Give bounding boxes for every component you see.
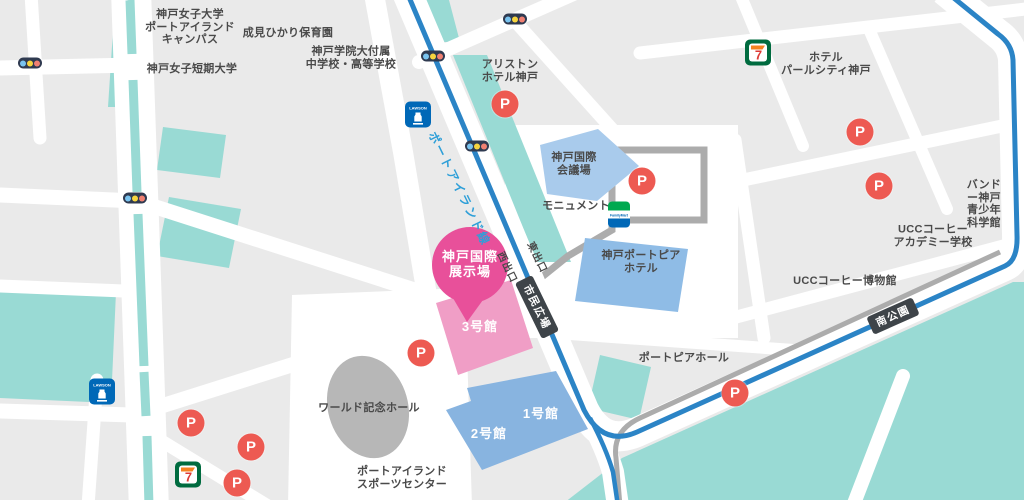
parking-icon[interactable]: P [629, 168, 656, 195]
parking-icon[interactable]: P [492, 91, 519, 118]
parking-icon[interactable]: P [722, 380, 749, 407]
road [31, 0, 40, 138]
traffic-light-icon [503, 14, 527, 25]
parking-icon[interactable]: P [408, 340, 435, 367]
traffic-light-icon [421, 51, 445, 62]
base-map [0, 0, 1024, 500]
callout-bubble[interactable] [432, 227, 508, 303]
green-block [157, 127, 226, 178]
map-canvas[interactable]: 神戸女子大学 ポートアイランド キャンパス 成見ひかり保育園 神戸学院大付属 中… [0, 0, 1024, 500]
seven-eleven-icon[interactable]: 7 [745, 40, 771, 71]
road [0, 286, 124, 291]
familymart-icon[interactable]: FamilyMart [608, 202, 630, 233]
parking-icon[interactable]: P [178, 410, 205, 437]
parking-icon[interactable]: P [866, 173, 893, 200]
seven-text: 7 [185, 470, 192, 485]
parking-icon[interactable]: P [847, 119, 874, 146]
seven-eleven-icon[interactable]: 7 [175, 462, 201, 493]
lawson-text: LAWSON [93, 383, 111, 388]
building-portopia-hotel[interactable] [575, 238, 688, 312]
parking-icon[interactable]: P [238, 434, 265, 461]
lawson-icon[interactable]: LAWSON [89, 379, 115, 410]
traffic-light-icon [123, 193, 147, 204]
familymart-text: FamilyMart [610, 214, 629, 218]
lawson-text: LAWSON [409, 106, 427, 111]
traffic-light-icon [18, 58, 42, 69]
traffic-light-icon [465, 141, 489, 152]
seven-text: 7 [755, 48, 762, 63]
lawson-icon[interactable]: LAWSON [405, 102, 431, 133]
parking-icon[interactable]: P [224, 470, 251, 497]
